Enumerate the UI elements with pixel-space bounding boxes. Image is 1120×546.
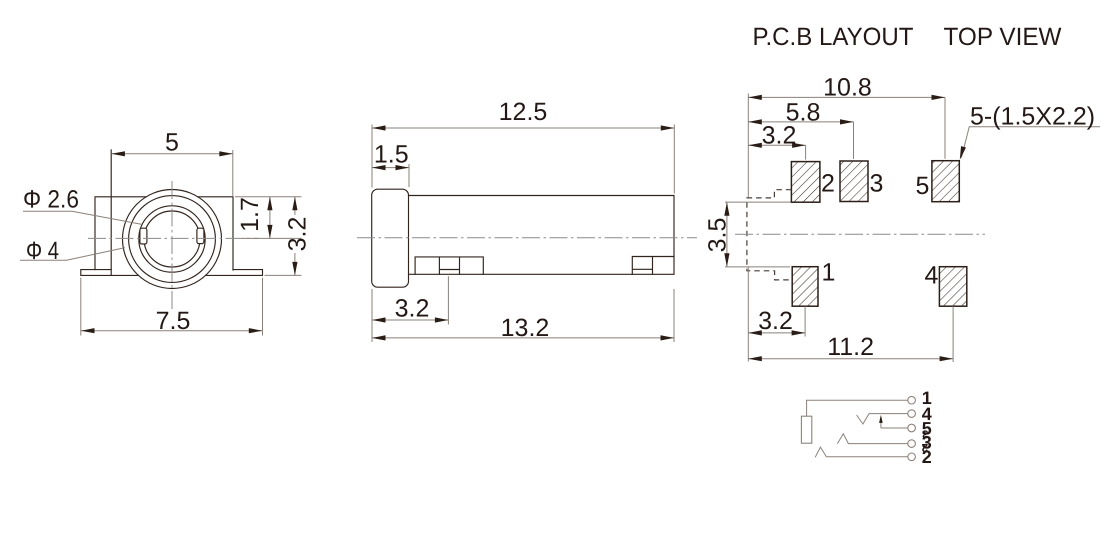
svg-text:3: 3 (870, 170, 884, 198)
svg-text:1.7: 1.7 (236, 197, 264, 232)
svg-text:3.2: 3.2 (284, 217, 312, 252)
svg-text:1.5: 1.5 (374, 141, 409, 169)
svg-text:5: 5 (165, 129, 179, 157)
svg-text:3.2: 3.2 (395, 295, 430, 323)
svg-text:1: 1 (822, 258, 836, 286)
svg-text:7.5: 7.5 (156, 307, 191, 335)
svg-text:3.2: 3.2 (762, 121, 797, 149)
svg-text:5: 5 (916, 172, 930, 200)
svg-text:Φ 2.6: Φ 2.6 (23, 185, 79, 213)
svg-text:TOP VIEW: TOP VIEW (944, 23, 1062, 51)
svg-text:P.C.B LAYOUT: P.C.B LAYOUT (753, 23, 914, 51)
svg-text:3.2: 3.2 (758, 307, 793, 335)
svg-text:5-(1.5X2.2): 5-(1.5X2.2) (970, 103, 1095, 131)
svg-text:2: 2 (821, 170, 835, 198)
svg-text:3.5: 3.5 (704, 218, 732, 253)
svg-text:10.8: 10.8 (823, 74, 872, 102)
svg-text:13.2: 13.2 (501, 314, 550, 342)
svg-text:4: 4 (925, 261, 939, 289)
svg-text:Φ 4: Φ 4 (26, 237, 59, 265)
svg-text:2: 2 (922, 441, 928, 453)
svg-text:11.2: 11.2 (827, 333, 874, 361)
svg-text:12.5: 12.5 (499, 98, 548, 126)
svg-text:3: 3 (922, 427, 928, 439)
